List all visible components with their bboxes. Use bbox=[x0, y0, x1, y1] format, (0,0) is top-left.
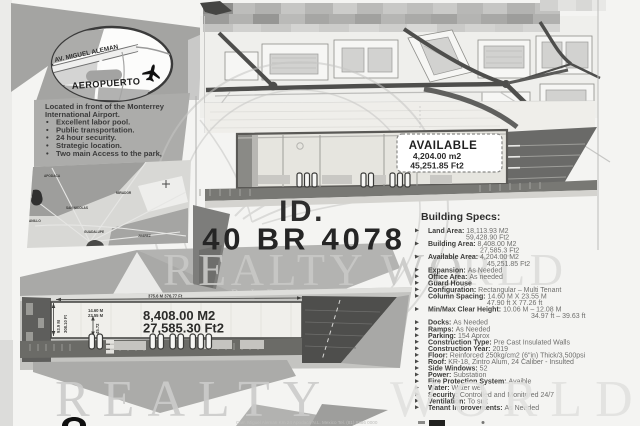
svg-text:WORLD: WORLD bbox=[390, 371, 640, 426]
svg-text:93.9 M: 93.9 M bbox=[56, 320, 61, 333]
svg-text:Carr. Miguel Aleman Km 24 Apod: Carr. Miguel Aleman Km 24 Apodaca N.L. M… bbox=[236, 420, 378, 425]
svg-text:45,251.85 Ft2: 45,251.85 Ft2 bbox=[410, 161, 464, 171]
svg-text:MIRADOR: MIRADOR bbox=[116, 191, 132, 195]
svg-text:REALTY: REALTY bbox=[55, 371, 333, 426]
svg-text:Two main Access to the park,: Two main Access to the park, bbox=[56, 149, 162, 158]
svg-text:ANILLO: ANILLO bbox=[29, 219, 41, 223]
svg-text:•: • bbox=[46, 149, 49, 158]
svg-text:45.72: 45.72 bbox=[95, 323, 100, 334]
svg-text:Building Specs:: Building Specs: bbox=[421, 211, 500, 223]
svg-text:4,204.00 m2: 4,204.00 m2 bbox=[413, 151, 461, 161]
svg-text:40 BR 4078: 40 BR 4078 bbox=[202, 222, 405, 257]
svg-text:34.97 ft – 39.63 ft: 34.97 ft – 39.63 ft bbox=[531, 313, 586, 320]
svg-text:JUAREZ: JUAREZ bbox=[138, 234, 151, 238]
svg-text:27,585.30 Ft2: 27,585.30 Ft2 bbox=[143, 321, 224, 336]
svg-text:308.10 Ft: 308.10 Ft bbox=[63, 314, 68, 333]
svg-text:375.6 M 376.77 Ft: 375.6 M 376.77 Ft bbox=[148, 294, 183, 299]
svg-text:SAN NICOLAS: SAN NICOLAS bbox=[66, 206, 88, 210]
svg-text:APODACA: APODACA bbox=[44, 174, 61, 178]
svg-text:GUADALUPE: GUADALUPE bbox=[84, 230, 104, 234]
svg-text:23.55 M: 23.55 M bbox=[88, 313, 104, 318]
